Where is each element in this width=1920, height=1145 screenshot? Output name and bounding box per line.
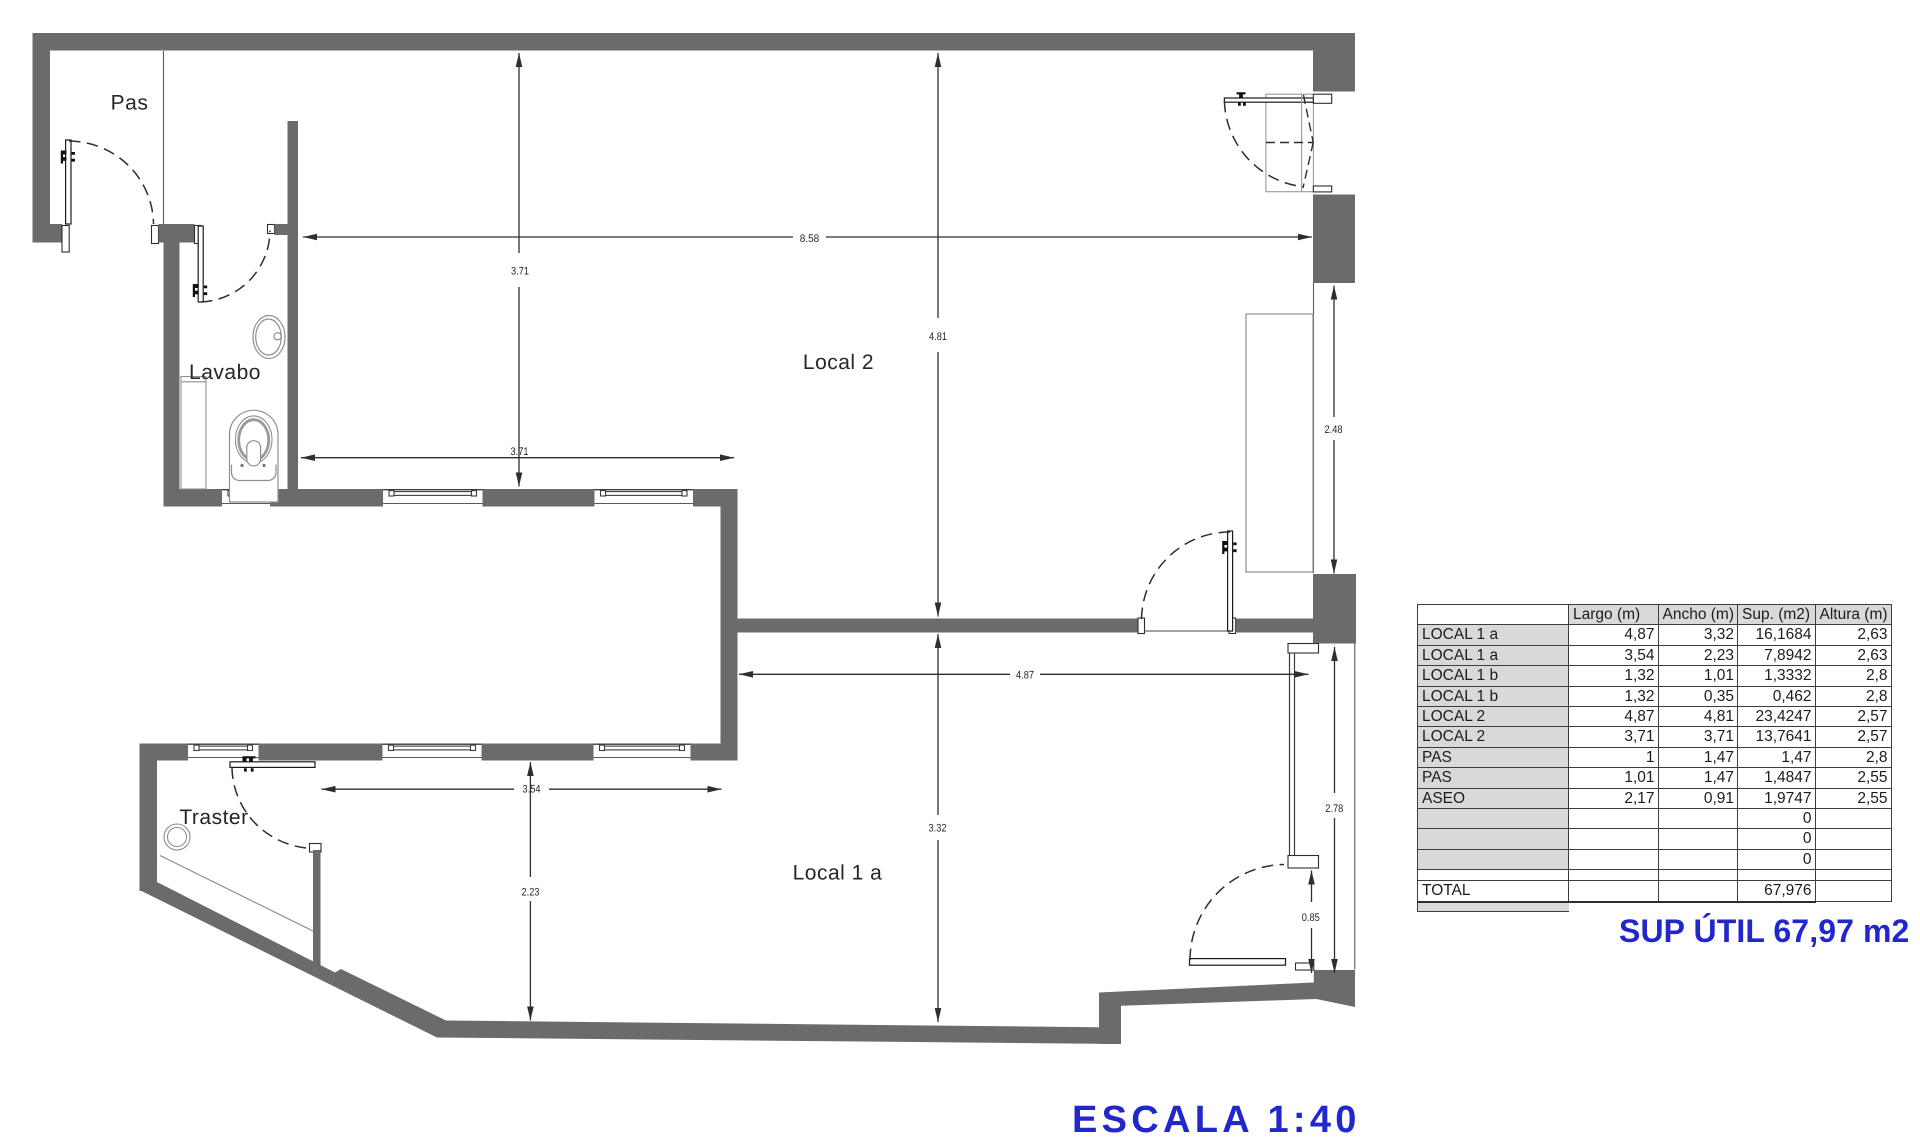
svg-text:2.23: 2.23 bbox=[522, 887, 540, 899]
svg-text:2.78: 2.78 bbox=[1325, 803, 1343, 815]
svg-text:Pas: Pas bbox=[111, 92, 149, 115]
svg-text:0.85: 0.85 bbox=[1302, 912, 1320, 924]
svg-text:8.58: 8.58 bbox=[800, 233, 820, 245]
svg-text:Local 2: Local 2 bbox=[803, 351, 874, 374]
svg-text:3.71: 3.71 bbox=[511, 446, 529, 458]
svg-text:3.32: 3.32 bbox=[929, 823, 947, 835]
svg-text:3.54: 3.54 bbox=[523, 784, 541, 796]
svg-text:2.48: 2.48 bbox=[1325, 424, 1343, 436]
svg-text:Lavabo: Lavabo bbox=[189, 361, 261, 384]
svg-text:Traster: Traster bbox=[179, 806, 248, 829]
svg-text:4.81: 4.81 bbox=[929, 331, 947, 343]
svg-text:4.87: 4.87 bbox=[1016, 670, 1034, 682]
svg-text:3.71: 3.71 bbox=[511, 266, 529, 278]
svg-text:Local 1 a: Local 1 a bbox=[793, 862, 883, 885]
